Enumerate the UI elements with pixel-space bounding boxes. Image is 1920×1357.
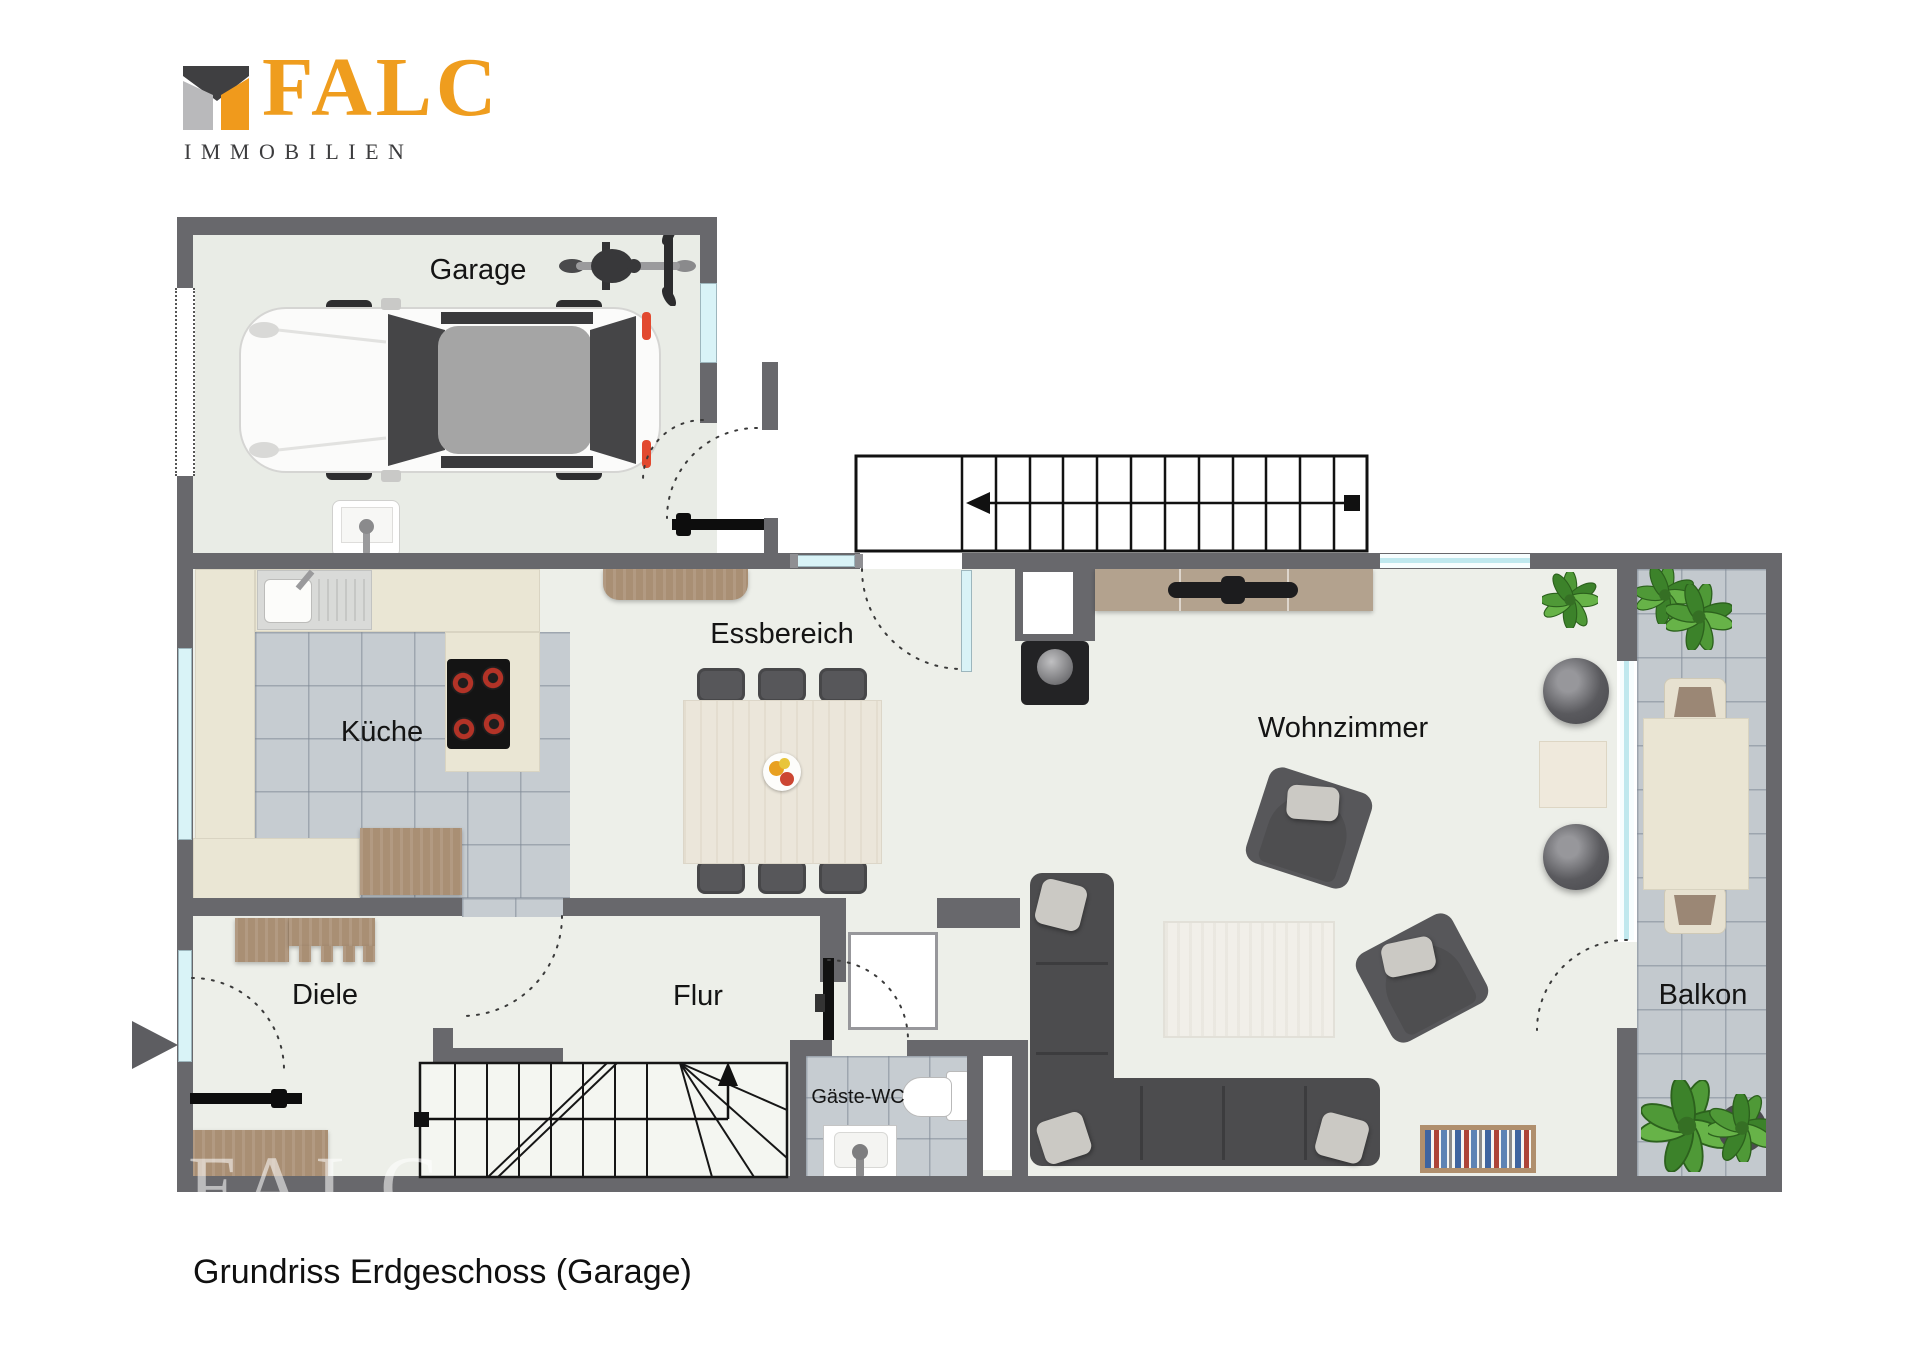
watermark: FALC <box>188 1136 449 1236</box>
plan-caption: Grundriss Erdgeschoss (Garage) <box>193 1253 692 1292</box>
room-label-gaeste-wc: Gäste-WC <box>811 1086 904 1109</box>
room-label-essbereich: Essbereich <box>710 618 853 651</box>
room-label-wohnzimmer: Wohnzimmer <box>1258 712 1428 745</box>
interior-stairs-icon <box>414 1062 787 1177</box>
room-label-balkon: Balkon <box>1659 979 1748 1012</box>
room-label-kueche: Küche <box>341 716 423 749</box>
room-label-diele: Diele <box>292 979 358 1012</box>
room-label-garage: Garage <box>430 254 527 287</box>
floorplan-page: FALC IMMOBILIEN <box>0 0 1920 1357</box>
room-label-flur: Flur <box>673 980 723 1013</box>
exterior-stairs-icon <box>856 456 1367 551</box>
entrance-arrow-icon <box>132 1021 178 1069</box>
